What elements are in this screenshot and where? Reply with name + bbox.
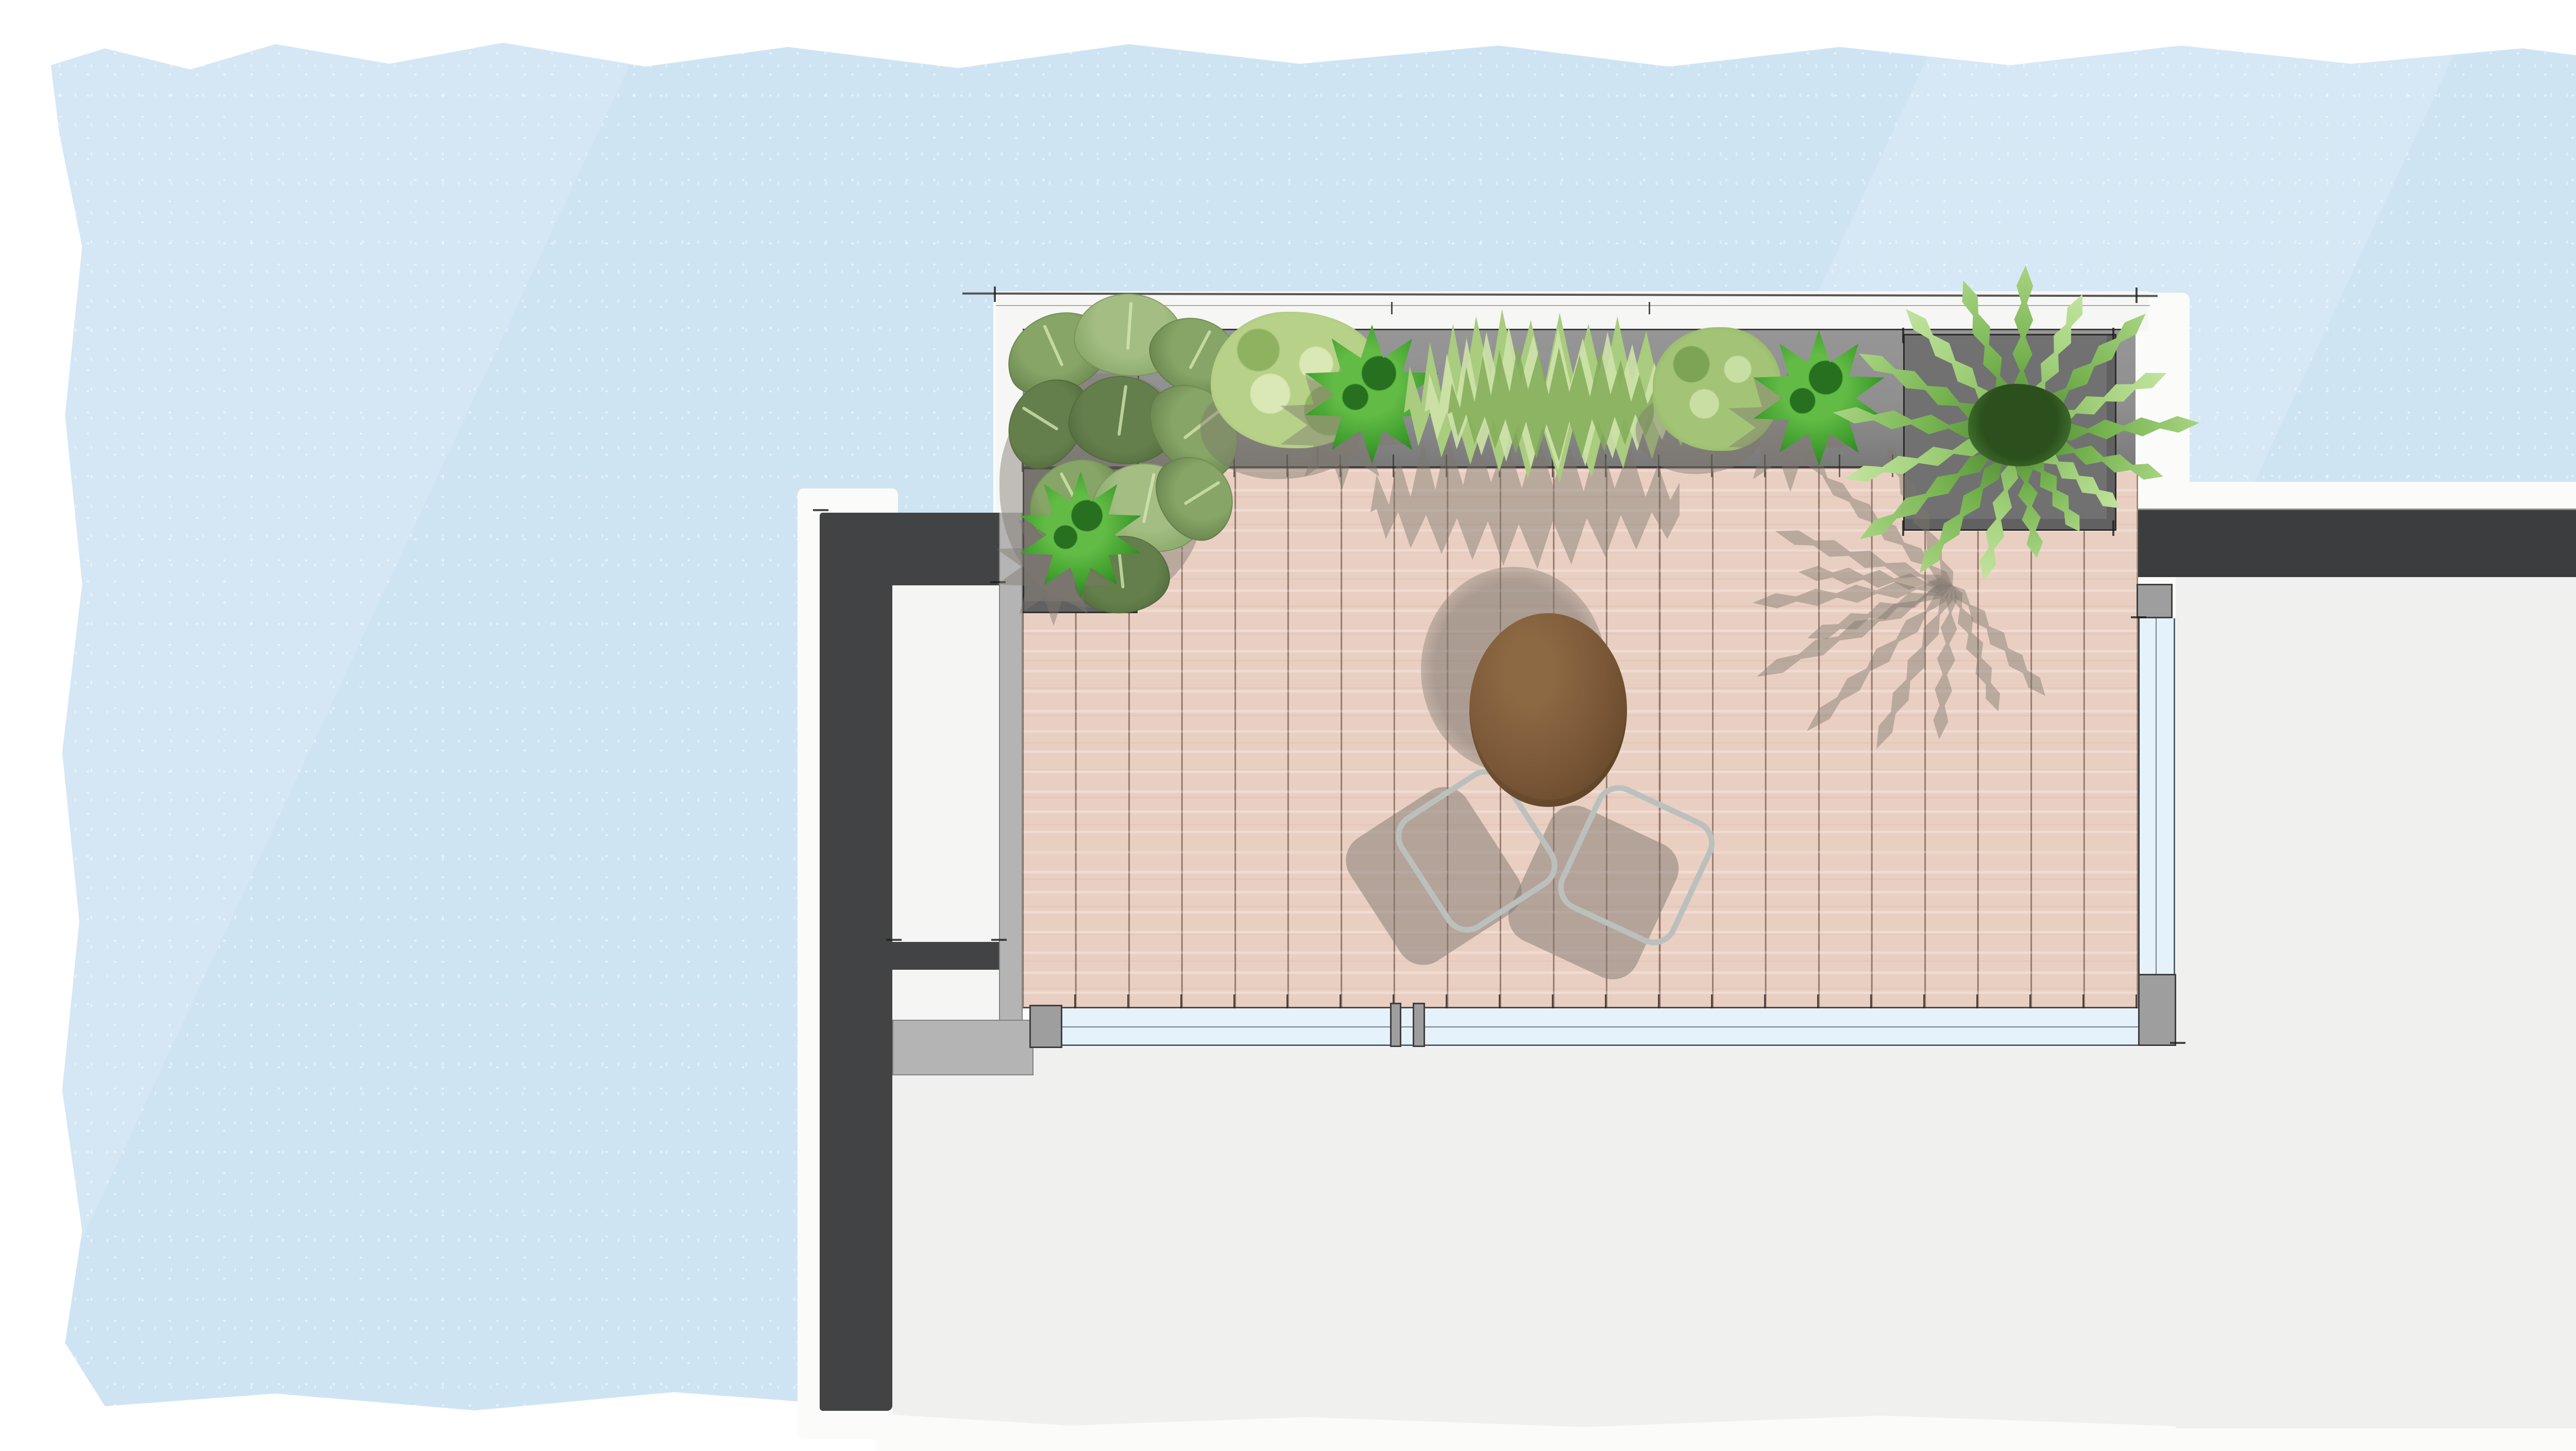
left-gray-threshold-band xyxy=(892,1020,1033,1075)
sketch-tick xyxy=(813,509,828,511)
plant-palm-group xyxy=(1793,219,2257,662)
bistro-table xyxy=(1469,613,1627,807)
left-door-recess xyxy=(892,585,999,942)
glass-post-corner xyxy=(2138,974,2176,1046)
left-wall-gap xyxy=(892,970,999,1021)
balustrade-post-mid-b xyxy=(1413,1003,1425,1047)
balustrade-mid-line xyxy=(1033,1026,2138,1027)
sketch-tick xyxy=(994,286,996,302)
sketch-tick xyxy=(886,939,902,941)
balustrade-post-left xyxy=(1029,1005,1062,1048)
palm-core xyxy=(1968,384,2071,466)
sketch-tick xyxy=(991,939,1007,941)
left-wall-vertical xyxy=(820,513,892,1411)
left-wall-mid-arm xyxy=(889,942,999,970)
terrace-plan-illustration xyxy=(0,0,2576,1451)
sketch-tick xyxy=(1649,302,1650,314)
left-wall-top-arm xyxy=(889,513,999,585)
sketch-tick xyxy=(2170,1042,2185,1044)
sketch-tick xyxy=(1391,302,1393,314)
balustrade-post-mid-a xyxy=(1390,1003,1401,1047)
right-room xyxy=(2176,577,2576,1428)
